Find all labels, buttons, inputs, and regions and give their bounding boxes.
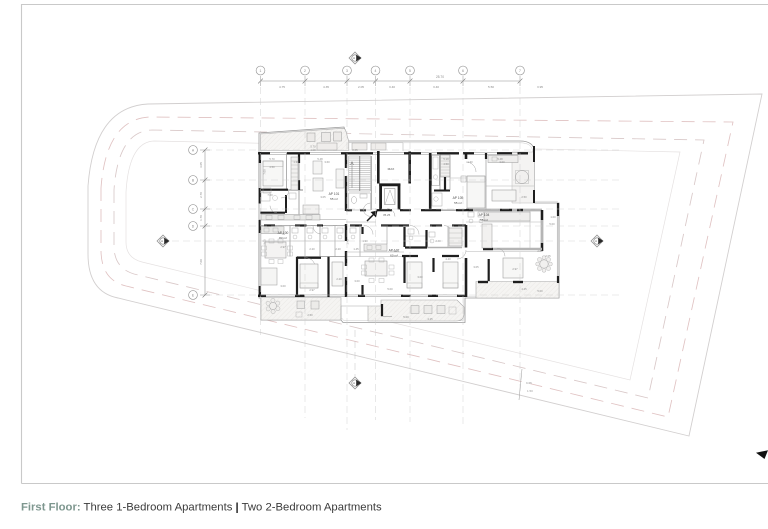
svg-text:AP 102: AP 102 — [389, 249, 400, 253]
svg-text:First Floor: Three 1-Bedroom A: First Floor: Three 1-Bedroom Apartments … — [21, 502, 382, 514]
svg-text:A: A — [595, 239, 597, 243]
svg-text:5.00: 5.00 — [549, 222, 555, 226]
svg-text:5.19: 5.19 — [443, 157, 449, 161]
svg-text:1: 1 — [260, 69, 262, 73]
svg-text:2.05: 2.05 — [537, 249, 543, 253]
svg-text:7.00: 7.00 — [199, 259, 203, 265]
svg-text:9.65: 9.65 — [526, 381, 532, 385]
svg-text:3.00: 3.00 — [280, 284, 286, 288]
svg-text:5.00: 5.00 — [403, 315, 409, 319]
svg-text:2.97: 2.97 — [512, 267, 518, 271]
svg-text:A: A — [161, 239, 163, 243]
svg-text:4.50: 4.50 — [443, 162, 449, 166]
svg-text:5: 5 — [409, 69, 411, 73]
svg-text:4.25: 4.25 — [521, 287, 527, 291]
svg-text:5.00: 5.00 — [537, 289, 543, 293]
svg-text:3.95: 3.95 — [537, 85, 543, 89]
svg-text:A: A — [353, 56, 355, 60]
svg-text:4.35: 4.35 — [323, 85, 329, 89]
svg-text:3.00: 3.00 — [417, 275, 423, 279]
svg-text:4.25: 4.25 — [427, 317, 433, 321]
svg-text:2.97: 2.97 — [309, 288, 315, 292]
svg-text:5.50: 5.50 — [488, 85, 494, 89]
svg-text:55 m²: 55 m² — [330, 197, 338, 201]
svg-text:3.05: 3.05 — [199, 162, 203, 168]
svg-text:5.70: 5.70 — [269, 157, 275, 161]
svg-text:2.50: 2.50 — [521, 195, 527, 199]
svg-text:3.40: 3.40 — [433, 85, 439, 89]
svg-text:AP 101: AP 101 — [329, 192, 340, 196]
svg-text:4: 4 — [375, 69, 377, 73]
svg-text:AP 100: AP 100 — [278, 231, 289, 235]
svg-text:2: 2 — [304, 69, 306, 73]
svg-text:4.40: 4.40 — [445, 257, 451, 261]
svg-text:4.75: 4.75 — [279, 85, 285, 89]
svg-text:AP 105: AP 105 — [453, 196, 464, 200]
svg-text:1.45: 1.45 — [353, 247, 359, 251]
svg-text:3.05: 3.05 — [263, 239, 267, 245]
svg-text:1.50: 1.50 — [527, 389, 533, 393]
svg-text:4.50: 4.50 — [269, 165, 275, 169]
svg-text:60 m²: 60 m² — [390, 254, 398, 258]
svg-text:2.97: 2.97 — [280, 245, 286, 249]
svg-text:7.00: 7.00 — [263, 169, 267, 175]
svg-text:MAX: MAX — [388, 167, 395, 171]
svg-text:2.05: 2.05 — [545, 254, 551, 258]
svg-text:3.40: 3.40 — [389, 85, 395, 89]
svg-text:AP 104: AP 104 — [479, 213, 490, 217]
svg-text:1.45: 1.45 — [346, 239, 350, 245]
svg-text:2.20: 2.20 — [336, 277, 342, 281]
svg-text:2.20: 2.20 — [309, 247, 315, 251]
svg-text:6: 6 — [462, 69, 464, 73]
svg-text:3.00: 3.00 — [499, 160, 505, 164]
svg-text:5.48: 5.48 — [317, 157, 323, 161]
svg-text:3.05: 3.05 — [320, 195, 326, 199]
svg-text:55 m²: 55 m² — [454, 201, 462, 205]
svg-text:5.70: 5.70 — [310, 145, 316, 149]
svg-text:35.25: 35.25 — [383, 213, 391, 217]
svg-text:3.05: 3.05 — [473, 265, 479, 269]
svg-text:1.30: 1.30 — [467, 160, 473, 164]
svg-text:7: 7 — [519, 69, 521, 73]
svg-text:2.05: 2.05 — [358, 85, 364, 89]
svg-text:3.60: 3.60 — [324, 160, 330, 164]
svg-text:3: 3 — [346, 69, 348, 73]
svg-text:1.70: 1.70 — [199, 215, 203, 221]
svg-text:2.70: 2.70 — [199, 192, 203, 198]
svg-text:25.70: 25.70 — [436, 75, 444, 79]
svg-text:1.30: 1.30 — [293, 160, 299, 164]
svg-text:83 m²: 83 m² — [279, 236, 287, 240]
svg-text:7.00: 7.00 — [267, 193, 273, 197]
svg-text:1.00: 1.00 — [550, 215, 556, 219]
svg-text:5.00: 5.00 — [387, 287, 393, 291]
svg-text:2.20: 2.20 — [335, 247, 341, 251]
svg-text:2.50: 2.50 — [307, 313, 313, 317]
svg-text:A: A — [353, 381, 355, 385]
svg-text:3.00: 3.00 — [354, 279, 360, 283]
svg-text:55 m²: 55 m² — [480, 218, 488, 222]
